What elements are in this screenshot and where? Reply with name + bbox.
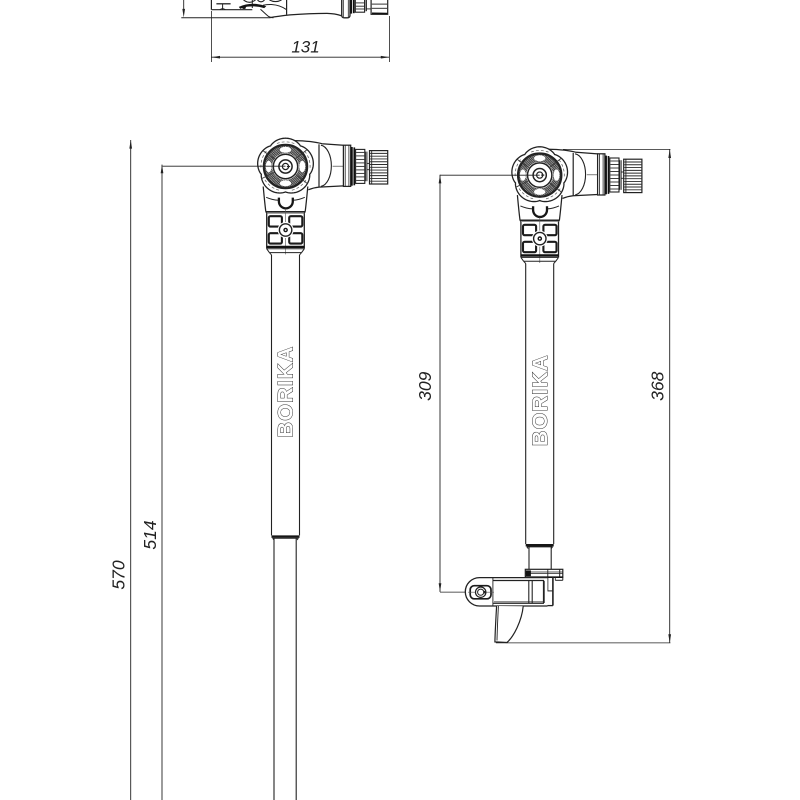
svg-text:BORIKA: BORIKA xyxy=(528,354,552,446)
svg-text:309: 309 xyxy=(415,371,435,400)
svg-text:131: 131 xyxy=(291,38,319,57)
svg-text:514: 514 xyxy=(140,520,160,549)
svg-text:570: 570 xyxy=(109,560,129,589)
svg-text:368: 368 xyxy=(648,371,668,400)
svg-text:BORIKA: BORIKA xyxy=(274,345,298,437)
